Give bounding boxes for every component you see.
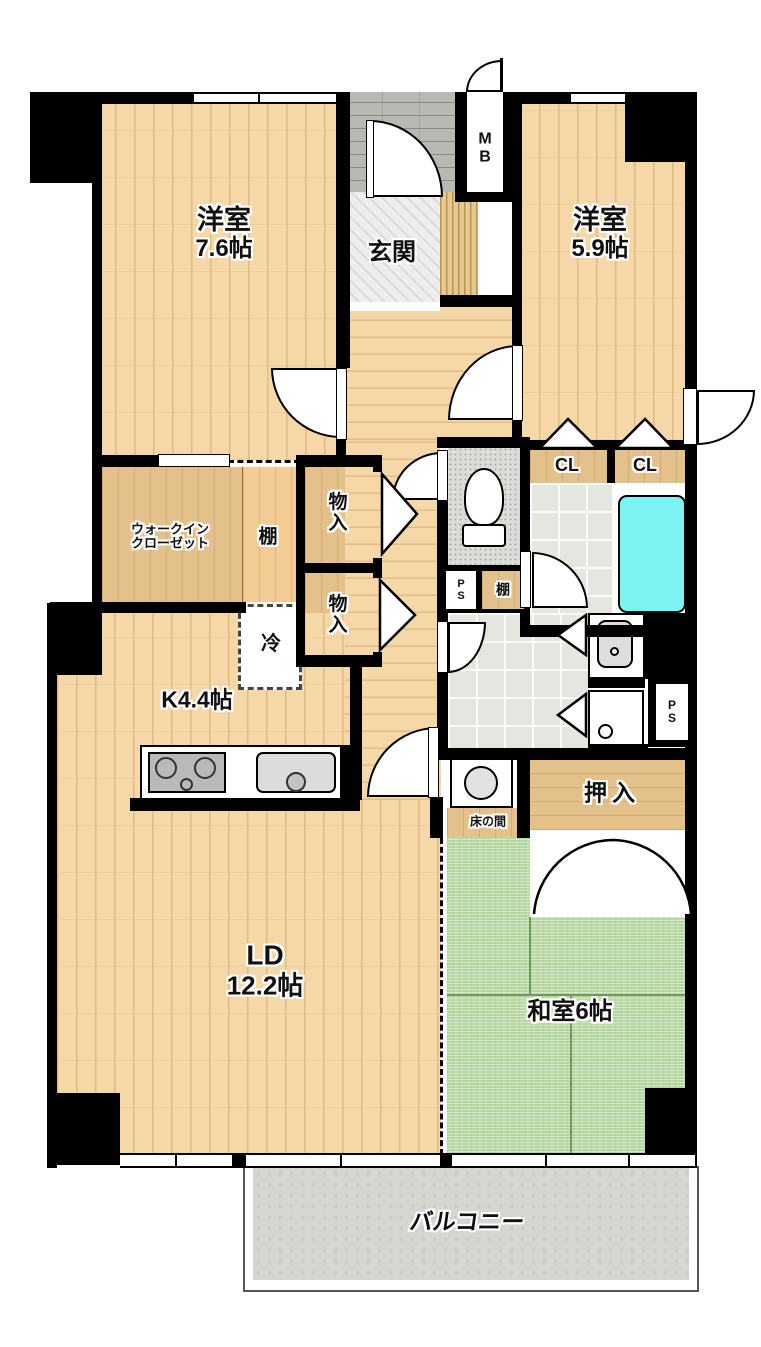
wall-under-counter	[130, 798, 360, 811]
ps2-label: PS	[665, 699, 679, 725]
shoe-cabinet	[440, 192, 478, 304]
genkan-step	[345, 302, 440, 311]
wall-porch-left	[336, 92, 350, 368]
wall-wic-top-a	[92, 455, 162, 467]
room76-name: 洋室	[195, 206, 252, 236]
window-south-tick-1	[175, 1153, 177, 1168]
wic-shelf-label: 棚	[258, 528, 277, 549]
floor-plan: 洋室 7.6帖 玄関 MB 洋室 5.9帖 ウォークイン クローゼット 棚 物入…	[0, 0, 761, 1347]
wall-mb-bottom	[455, 192, 515, 202]
wic-label: ウォークイン クローゼット	[131, 523, 209, 552]
wall-left-upper	[92, 92, 102, 613]
kitchen-label: K4.4帖	[161, 687, 233, 712]
window-top-room76	[194, 92, 338, 104]
wall-genkan-room59	[512, 104, 522, 345]
toilet-shelf-label: 棚	[496, 582, 510, 597]
room59-name: 洋室	[571, 206, 628, 236]
mb-label: MB	[476, 130, 494, 165]
window-south-tick-4	[628, 1153, 630, 1168]
bathtub-icon	[618, 495, 686, 613]
wall-under-shoe-closet	[440, 295, 512, 307]
ld-label: LD 12.2帖	[227, 940, 304, 999]
oshiire-label: 押入	[584, 780, 640, 805]
wall-basin-pan-div	[588, 677, 645, 688]
wall-storage-post-2	[373, 558, 382, 578]
wall-left-lower	[47, 603, 57, 1168]
wall-storage-post-1	[373, 455, 382, 472]
window-south-post-2	[440, 1153, 452, 1168]
washitsu-label: 和室6帖	[527, 999, 612, 1025]
water-heater-circle	[464, 766, 498, 800]
kitchen-sink-icon	[256, 752, 336, 793]
genkan-label: 玄関	[368, 240, 416, 266]
wall-bath-bottom	[520, 625, 695, 637]
bath-door-leaf	[520, 551, 531, 608]
storage1-label: 物入	[327, 493, 349, 535]
washbasin-unit	[588, 613, 645, 679]
wic-label-line2: クローゼット	[131, 537, 209, 551]
washroom-door-leaf	[437, 621, 448, 673]
window-tick-1	[258, 92, 260, 104]
cl1-label: CL	[555, 456, 579, 476]
wall-storage-post-3	[373, 652, 382, 667]
ld-door-leaf	[428, 727, 439, 798]
mb-door-leaf	[500, 58, 503, 92]
wic-door-open-dashes	[228, 460, 300, 463]
wall-toilet-left	[437, 500, 448, 565]
exterior-door-leaf	[683, 388, 697, 445]
wall-mb-left	[455, 92, 467, 200]
window-south	[120, 1153, 695, 1168]
wall-bath-left-a	[520, 437, 530, 552]
wall-tokonoma-left	[430, 797, 443, 838]
wall-room59-bottom	[520, 440, 695, 450]
washing-machine-pan	[588, 690, 644, 746]
storage2-label: 物入	[327, 595, 349, 637]
room76-label: 洋室 7.6帖	[195, 206, 252, 262]
room59-door-leaf	[512, 345, 523, 421]
wall-oshiire-top	[517, 748, 695, 760]
water-heater-box	[450, 757, 513, 808]
room59-label: 洋室 5.9帖	[571, 206, 628, 262]
oshiire-door-band	[530, 833, 695, 917]
mb-door-swing	[466, 60, 502, 92]
wall-kitchen-corridor	[350, 663, 362, 745]
wall-block-bottom-left	[50, 1093, 120, 1165]
wall-counter-post	[340, 745, 362, 800]
exterior-door-swing	[697, 390, 755, 445]
room76-door-leaf	[336, 368, 347, 440]
entry-closet	[478, 192, 512, 304]
wall-oshiire-left	[517, 758, 530, 838]
fridge-label: 冷	[261, 633, 281, 655]
wall-top-b	[515, 92, 571, 104]
wic-sliding-door	[158, 454, 230, 467]
toilet-tank	[462, 524, 506, 547]
window-south-post-1	[232, 1153, 246, 1168]
window-south-tick-2	[340, 1153, 342, 1168]
toilet-door-leaf	[437, 450, 448, 501]
stove-icon	[148, 752, 226, 793]
window-south-tick-3	[545, 1153, 547, 1168]
room59-size: 5.9帖	[571, 236, 628, 262]
wall-block-bottom-right	[645, 1088, 697, 1158]
wall-cl-divider	[607, 450, 615, 483]
room76-size: 7.6帖	[195, 236, 252, 262]
wall-wic-bottom	[50, 602, 246, 613]
toilet-icon	[464, 468, 504, 526]
washbasin-faucet	[610, 647, 619, 656]
wall-toilet-top	[437, 437, 530, 448]
ld-tatami-dashed-line	[440, 838, 443, 1155]
wall-storage-bottom	[296, 655, 382, 667]
ps1-label: PS	[455, 578, 468, 602]
wall-block-top-left	[30, 92, 96, 183]
front-door-leaf	[366, 120, 374, 198]
tokonoma-label: 床の間	[470, 815, 506, 828]
wall-wic-storage-div	[296, 455, 305, 667]
window-tick-2	[625, 92, 627, 104]
wall-storage-divider	[305, 563, 373, 573]
ld-name: LD	[227, 940, 304, 971]
wall-top-a	[92, 92, 194, 104]
ld-size: 12.2帖	[227, 971, 304, 1000]
cl2-label: CL	[633, 456, 657, 476]
tatami-mat-line-v1	[529, 917, 531, 995]
wall-storage-top	[298, 455, 378, 467]
balcony-label: バルコニー	[408, 1209, 526, 1234]
wall-block-kitchen-nw	[50, 603, 102, 675]
